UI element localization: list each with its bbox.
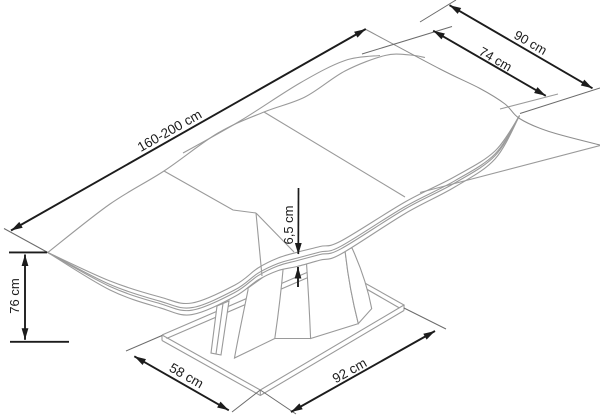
svg-text:76 cm: 76 cm (7, 278, 22, 313)
svg-text:74 cm: 74 cm (476, 44, 514, 75)
svg-text:92 cm: 92 cm (330, 355, 369, 386)
svg-text:6,5 cm: 6,5 cm (281, 205, 296, 244)
